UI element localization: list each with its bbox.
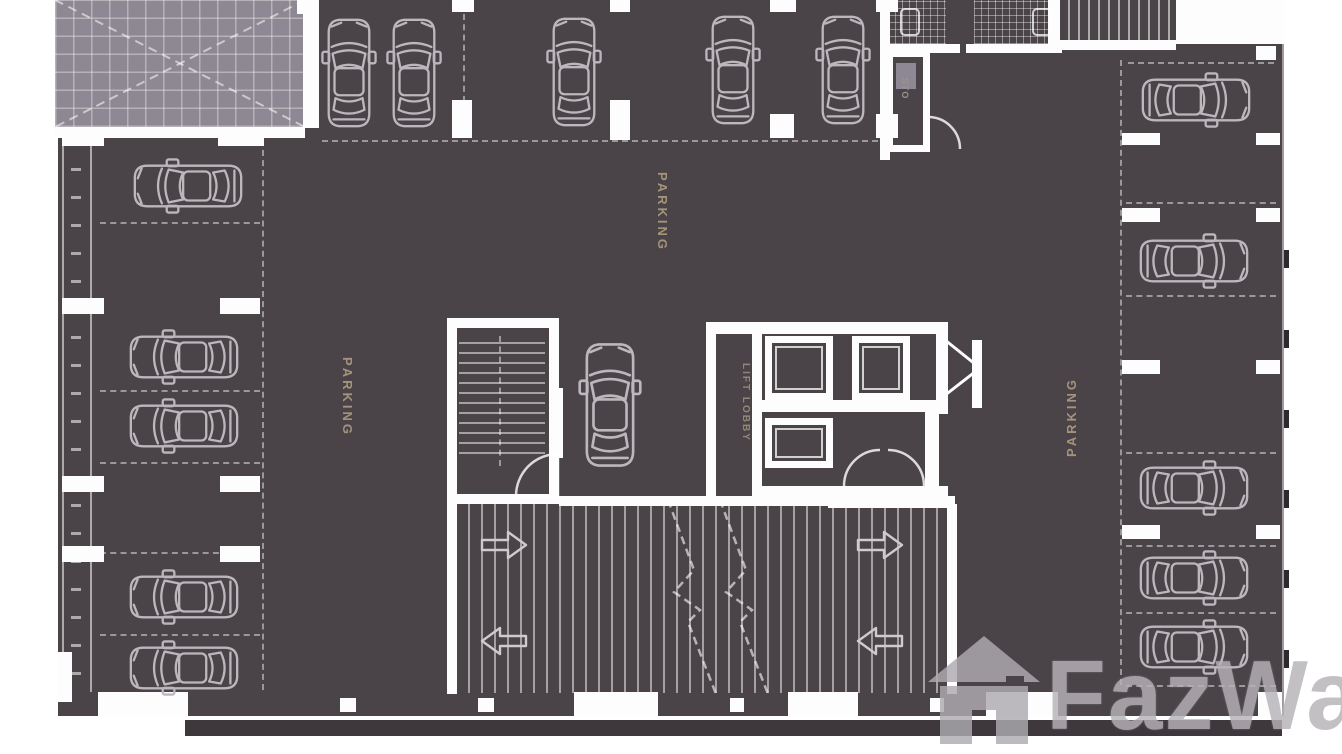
stall-line bbox=[100, 390, 260, 392]
car-top-view-icon bbox=[126, 397, 242, 455]
structural-column bbox=[1256, 525, 1280, 539]
car-top-view-icon bbox=[126, 328, 242, 386]
structural-column bbox=[610, 0, 630, 12]
structural-column bbox=[770, 0, 796, 12]
car-top-view-icon bbox=[320, 15, 378, 131]
parking-label-center: PARKING bbox=[655, 172, 670, 252]
stall-line bbox=[100, 222, 260, 224]
stall-line bbox=[1126, 612, 1276, 614]
structural-column bbox=[1256, 208, 1280, 222]
parking-label-left: PARKING bbox=[340, 357, 355, 437]
car-top-view-icon bbox=[814, 12, 872, 128]
structural-column bbox=[876, 0, 898, 12]
stall-line bbox=[1120, 60, 1122, 685]
door-tick bbox=[1284, 410, 1289, 428]
stall-line bbox=[1126, 452, 1276, 454]
direction-arrow-icon bbox=[856, 530, 904, 560]
structural-column bbox=[1256, 133, 1280, 145]
car-top-view-icon bbox=[1136, 459, 1252, 517]
door-tick bbox=[1284, 250, 1289, 268]
car-top-view-icon bbox=[1136, 232, 1252, 290]
structural-column bbox=[62, 546, 104, 562]
structural-column bbox=[340, 698, 356, 712]
structural-column bbox=[610, 100, 630, 140]
watermark: FazWa bbox=[928, 636, 1342, 744]
car-top-view-icon bbox=[1136, 549, 1252, 607]
house-icon bbox=[928, 636, 1040, 744]
structural-column bbox=[574, 692, 658, 716]
structural-column bbox=[1122, 133, 1160, 145]
stall-line bbox=[1126, 202, 1276, 204]
structural-column bbox=[220, 298, 260, 314]
door-tick bbox=[1284, 330, 1289, 348]
structural-column bbox=[1122, 208, 1160, 222]
direction-arrow-icon bbox=[856, 626, 904, 656]
stall-line bbox=[1126, 295, 1276, 297]
direction-arrow-icon bbox=[480, 626, 528, 656]
structural-column bbox=[770, 114, 794, 138]
stall-line bbox=[100, 462, 260, 464]
car-top-view-icon bbox=[704, 12, 762, 128]
door-tick bbox=[1284, 570, 1289, 588]
stall-line bbox=[262, 150, 264, 690]
structural-column bbox=[220, 546, 260, 562]
parking-floor-plan: STO LIFT LOBBY bbox=[0, 0, 1342, 754]
stall-line bbox=[100, 552, 260, 554]
door-tick bbox=[1284, 490, 1289, 508]
car-top-view-icon bbox=[126, 568, 242, 626]
structural-column bbox=[788, 692, 858, 716]
structural-column bbox=[1122, 360, 1160, 374]
structural-column bbox=[730, 698, 744, 712]
structural-column bbox=[62, 298, 104, 314]
structural-column bbox=[218, 128, 264, 146]
stall-line bbox=[463, 14, 465, 102]
car-top-view-icon bbox=[126, 639, 242, 697]
structural-column bbox=[452, 100, 472, 138]
car-top-view-icon bbox=[545, 14, 603, 130]
structural-column bbox=[62, 128, 104, 146]
structural-column bbox=[1256, 360, 1280, 374]
structural-column bbox=[452, 0, 474, 12]
car-top-view-icon bbox=[577, 339, 643, 471]
stall-line bbox=[100, 634, 260, 636]
structural-column bbox=[478, 698, 494, 712]
structural-column bbox=[220, 476, 260, 492]
car-top-view-icon bbox=[385, 15, 443, 131]
parking-label-right: PARKING bbox=[1064, 377, 1079, 457]
stall-line bbox=[1126, 545, 1276, 547]
watermark-text: FazWa bbox=[1046, 646, 1342, 744]
structural-column bbox=[876, 114, 898, 138]
car-top-view-icon bbox=[1138, 71, 1254, 129]
stall-line bbox=[1128, 62, 1274, 64]
car-top-view-icon bbox=[130, 157, 246, 215]
stall-line bbox=[322, 140, 878, 142]
structural-column bbox=[297, 0, 315, 14]
structural-column bbox=[62, 476, 104, 492]
direction-arrow-icon bbox=[480, 530, 528, 560]
structural-column bbox=[1122, 525, 1160, 539]
